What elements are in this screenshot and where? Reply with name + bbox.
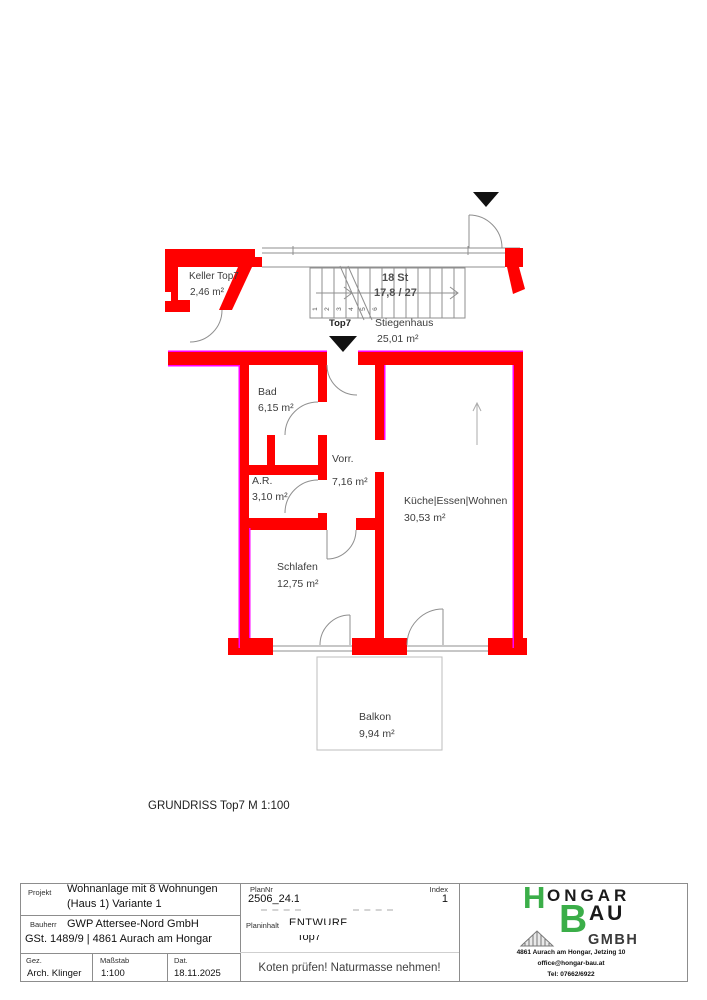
north-entry-arrow-icon	[473, 192, 499, 207]
stair-dimension-label: 17,8 / 27	[374, 288, 417, 299]
room-area-keller: 2,46 m²	[190, 288, 224, 298]
titleblock-divider-faint	[240, 952, 459, 953]
floorplan-drawing	[0, 0, 707, 1000]
titleblock-divider	[20, 953, 240, 954]
bauherr-label: Bauherr	[30, 921, 57, 929]
room-label-schlafen: Schlafen	[277, 562, 318, 573]
titleblock-divider	[240, 883, 241, 982]
floorplan-page: Keller Top7 2,46 m² 18 St 17,8 / 27 1 2 …	[0, 0, 707, 1000]
stair-count-label: 18 St	[382, 273, 408, 284]
bauherr-line1: GWP Attersee-Nord GmbH	[67, 918, 199, 932]
room-label-vorr: Vorr.	[332, 454, 354, 465]
massstab-value: 1:100	[101, 969, 125, 979]
logo-letter-b: B	[559, 900, 587, 939]
titleblock-divider	[167, 953, 168, 982]
whiteout-dash-mark	[353, 909, 393, 911]
whiteout-mark	[288, 925, 350, 930]
stairhall-right-wall	[505, 248, 525, 294]
index-value: 1	[410, 893, 448, 907]
tread-number: 4	[347, 304, 357, 314]
titleblock-divider	[92, 953, 93, 982]
logo-phone: Tel: 07662/6922	[505, 972, 637, 979]
titleblock-divider	[459, 883, 460, 982]
tread-number: 3	[335, 304, 345, 314]
landing-lines	[262, 246, 520, 267]
room-label-ar: A.R.	[252, 476, 272, 487]
planinhalt-label: Planinhalt	[246, 922, 279, 930]
bauherr-line2: GSt. 1489/9 | 4861 Aurach am Hongar	[25, 933, 212, 947]
entrance-top7-label: Top7	[329, 319, 351, 329]
projekt-label: Projekt	[28, 889, 51, 897]
room-label-balkon: Balkon	[359, 712, 391, 723]
room-area-kueche: 30,53 m²	[404, 513, 445, 524]
room-area-balkon: 9,94 m²	[359, 729, 395, 740]
room-area-stiegenhaus: 25,01 m²	[377, 334, 418, 345]
whiteout-mark	[299, 891, 308, 904]
room-label-bad: Bad	[258, 387, 277, 398]
tread-number: 1	[311, 304, 321, 314]
tread-number: 2	[323, 304, 333, 314]
room-area-vorr: 7,16 m²	[332, 477, 368, 488]
room-area-ar: 3,10 m²	[252, 492, 288, 503]
room-area-bad: 6,15 m²	[258, 403, 294, 414]
keller-door-arc	[190, 310, 222, 342]
logo-letter-h: H	[523, 882, 545, 913]
gez-value: Arch. Klinger	[27, 969, 81, 979]
dat-label: Dat.	[174, 957, 188, 965]
plan-caption: GRUNDRISS Top7 M 1:100	[148, 801, 290, 813]
room-label-stiegenhaus: Stiegenhaus	[375, 318, 433, 329]
stairhall-door	[469, 215, 502, 248]
logo-address: 4861 Aurach am Hongar, Jetzing 10	[505, 950, 637, 957]
dat-value: 18.11.2025	[174, 969, 221, 979]
room-label-kueche: Küche|Essen|Wohnen	[404, 496, 507, 507]
projekt-line2: (Haus 1) Variante 1	[67, 898, 162, 912]
massstab-label: Maßstab	[100, 957, 129, 965]
room-label-keller: Keller Top7	[189, 272, 239, 282]
check-note: Koten prüfen! Naturmasse nehmen!	[242, 963, 457, 975]
vent-arrow-icon	[473, 403, 481, 445]
projekt-line1: Wohnanlage mit 8 Wohnungen	[67, 883, 218, 897]
plannr-value: 2506_24.18	[248, 893, 306, 907]
gez-label: Gez.	[26, 957, 42, 965]
whiteout-mark	[294, 931, 326, 935]
room-area-schlafen: 12,75 m²	[277, 579, 318, 590]
logo-email: office@hongar-bau.at	[505, 961, 637, 968]
tread-number: 6	[371, 304, 381, 314]
tread-number: 5	[359, 304, 369, 314]
apartment-entry-arrow-icon	[329, 336, 357, 352]
titleblock-divider	[20, 915, 240, 916]
logo-text-au: AU	[589, 903, 625, 924]
whiteout-dash-mark	[261, 909, 301, 911]
logo-roof-icon	[519, 928, 555, 948]
logo-text-gmbh: GMBH	[588, 933, 638, 948]
